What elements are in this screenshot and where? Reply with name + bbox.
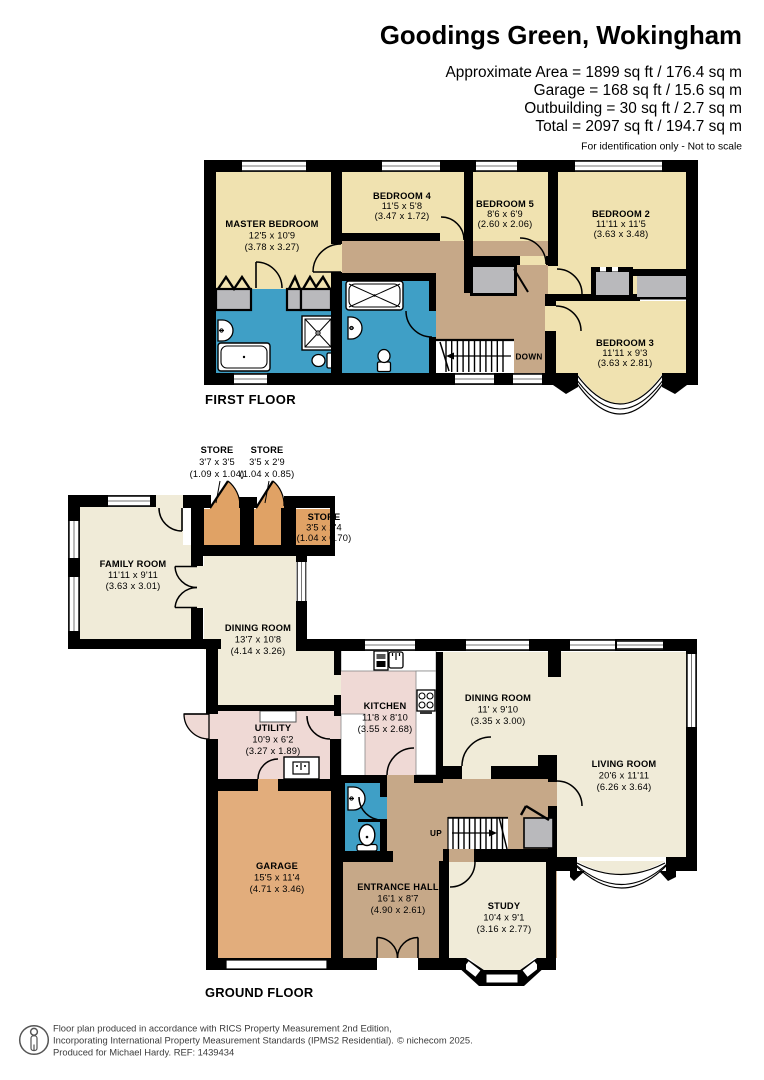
svg-text:11' x 9'10: 11' x 9'10 [478, 705, 519, 715]
svg-text:© nichecom 2025.: © nichecom 2025. [397, 1035, 473, 1046]
svg-text:ENTRANCE HALL: ENTRANCE HALL [357, 882, 439, 892]
svg-text:Floor plan produced in accorda: Floor plan produced in accordance with R… [53, 1023, 392, 1034]
svg-text:FAMILY ROOM: FAMILY ROOM [100, 559, 167, 569]
svg-text:DINING ROOM: DINING ROOM [225, 623, 291, 633]
svg-text:(1.04 x 0.85): (1.04 x 0.85) [240, 469, 295, 479]
svg-text:Goodings Green, Wokingham: Goodings Green, Wokingham [380, 22, 742, 50]
svg-text:(3.16 x 2.77): (3.16 x 2.77) [477, 924, 532, 934]
svg-text:(4.14 x 3.26): (4.14 x 3.26) [231, 646, 286, 656]
svg-text:For identification only - Not: For identification only - Not to scale [581, 142, 742, 153]
svg-text:GROUND FLOOR: GROUND FLOOR [205, 985, 314, 1000]
svg-text:(3.63 x 3.01): (3.63 x 3.01) [106, 581, 161, 591]
svg-text:8'6 x 6'9: 8'6 x 6'9 [487, 209, 523, 219]
svg-text:(3.27 x 1.89): (3.27 x 1.89) [246, 746, 301, 756]
svg-text:Total = 2097 sq ft / 194.7 sq: Total = 2097 sq ft / 194.7 sq m [535, 118, 742, 135]
svg-text:11'5 x 5'8: 11'5 x 5'8 [382, 201, 423, 211]
svg-text:UTILITY: UTILITY [255, 723, 292, 733]
svg-text:BEDROOM 4: BEDROOM 4 [373, 191, 432, 201]
svg-text:UP: UP [430, 829, 442, 838]
svg-text:11'11 x 9'11: 11'11 x 9'11 [108, 570, 158, 580]
svg-text:10'4 x 9'1: 10'4 x 9'1 [483, 913, 524, 923]
svg-text:(1.04 x 0.70): (1.04 x 0.70) [297, 533, 352, 543]
svg-text:(4.90 x 2.61): (4.90 x 2.61) [371, 905, 426, 915]
svg-text:FIRST FLOOR: FIRST FLOOR [205, 392, 296, 407]
svg-text:STORE: STORE [308, 512, 341, 522]
svg-text:STORE: STORE [251, 445, 284, 455]
svg-text:STORE: STORE [201, 445, 234, 455]
svg-text:3'7 x 3'5: 3'7 x 3'5 [199, 457, 235, 467]
svg-text:(3.78 x 3.27): (3.78 x 3.27) [245, 242, 300, 252]
svg-text:20'6 x 11'11: 20'6 x 11'11 [599, 771, 650, 781]
svg-text:10'9 x 6'2: 10'9 x 6'2 [252, 735, 293, 745]
svg-text:MASTER BEDROOM: MASTER BEDROOM [225, 219, 318, 229]
svg-text:11'11 x 11'5: 11'11 x 11'5 [596, 219, 646, 229]
svg-text:12'5 x 10'9: 12'5 x 10'9 [249, 230, 296, 240]
svg-text:GARAGE: GARAGE [256, 861, 298, 871]
svg-text:BEDROOM 3: BEDROOM 3 [596, 338, 654, 348]
svg-text:15'5 x 11'4: 15'5 x 11'4 [254, 873, 300, 883]
svg-text:(1.09 x 1.04): (1.09 x 1.04) [190, 469, 245, 479]
svg-text:Produced for Michael Hardy.: Produced for Michael Hardy. REF: 1439434 [53, 1047, 234, 1058]
svg-text:16'1 x 8'7: 16'1 x 8'7 [377, 894, 418, 904]
svg-text:(6.26 x 3.64): (6.26 x 3.64) [597, 782, 652, 792]
svg-text:Approximate Area = 1899 sq ft: Approximate Area = 1899 sq ft / 176.4 sq… [446, 64, 742, 81]
svg-text:STUDY: STUDY [488, 901, 521, 911]
svg-text:DINING ROOM: DINING ROOM [465, 693, 531, 703]
svg-text:Garage = 168 sq ft / 15.6 sq m: Garage = 168 sq ft / 15.6 sq m [534, 82, 742, 99]
svg-text:(3.63 x 2.81): (3.63 x 2.81) [598, 358, 653, 368]
svg-text:13'7 x 10'8: 13'7 x 10'8 [235, 635, 282, 645]
svg-text:LIVING ROOM: LIVING ROOM [592, 759, 657, 769]
svg-text:3'5 x 2'9: 3'5 x 2'9 [249, 457, 285, 467]
svg-text:Incorporating International Pr: Incorporating International Property Mea… [53, 1035, 394, 1046]
svg-text:11'11 x 9'3: 11'11 x 9'3 [602, 348, 647, 358]
svg-text:(3.55 x 2.68): (3.55 x 2.68) [358, 724, 413, 734]
svg-text:Outbuilding = 30 sq ft / 2.7 s: Outbuilding = 30 sq ft / 2.7 sq m [524, 100, 742, 117]
svg-text:(3.35 x 3.00): (3.35 x 3.00) [471, 716, 526, 726]
svg-text:(3.47 x 1.72): (3.47 x 1.72) [375, 211, 430, 221]
svg-text:BEDROOM 5: BEDROOM 5 [476, 199, 534, 209]
svg-text:3'5 x 2'4: 3'5 x 2'4 [306, 523, 342, 533]
svg-text:11'8 x 8'10: 11'8 x 8'10 [362, 713, 408, 723]
svg-text:(3.63 x 3.48): (3.63 x 3.48) [594, 229, 649, 239]
svg-text:DOWN: DOWN [515, 353, 542, 362]
svg-text:BEDROOM 2: BEDROOM 2 [592, 209, 650, 219]
svg-text:(2.60 x 2.06): (2.60 x 2.06) [478, 219, 533, 229]
svg-text:(4.71 x 3.46): (4.71 x 3.46) [250, 884, 305, 894]
svg-text:KITCHEN: KITCHEN [364, 701, 407, 711]
